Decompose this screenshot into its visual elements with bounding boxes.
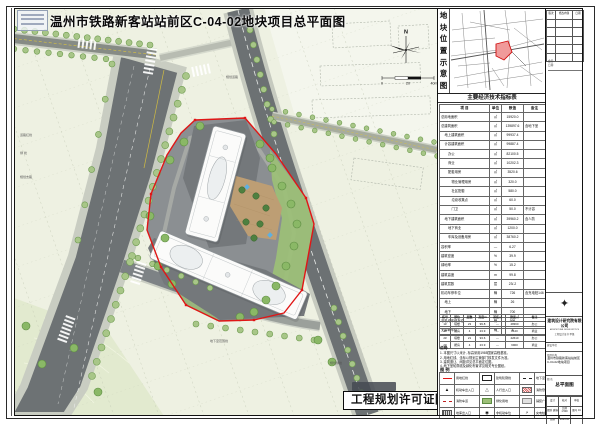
binding-margin-line [11,8,12,416]
drawing-frame [14,8,583,416]
title-stamp [17,10,48,31]
permit-stamp: 工程规划许可证附图 [343,391,437,410]
drawing-sheet: 道路红线绿 线规划支路地下室范围线规划绿地规划道路 N 0 2 [0,0,600,424]
permit-seal-blob [352,382,396,391]
page-title: 温州市铁路新客站站前区C-04-02地块项目总平面图 [50,11,346,30]
